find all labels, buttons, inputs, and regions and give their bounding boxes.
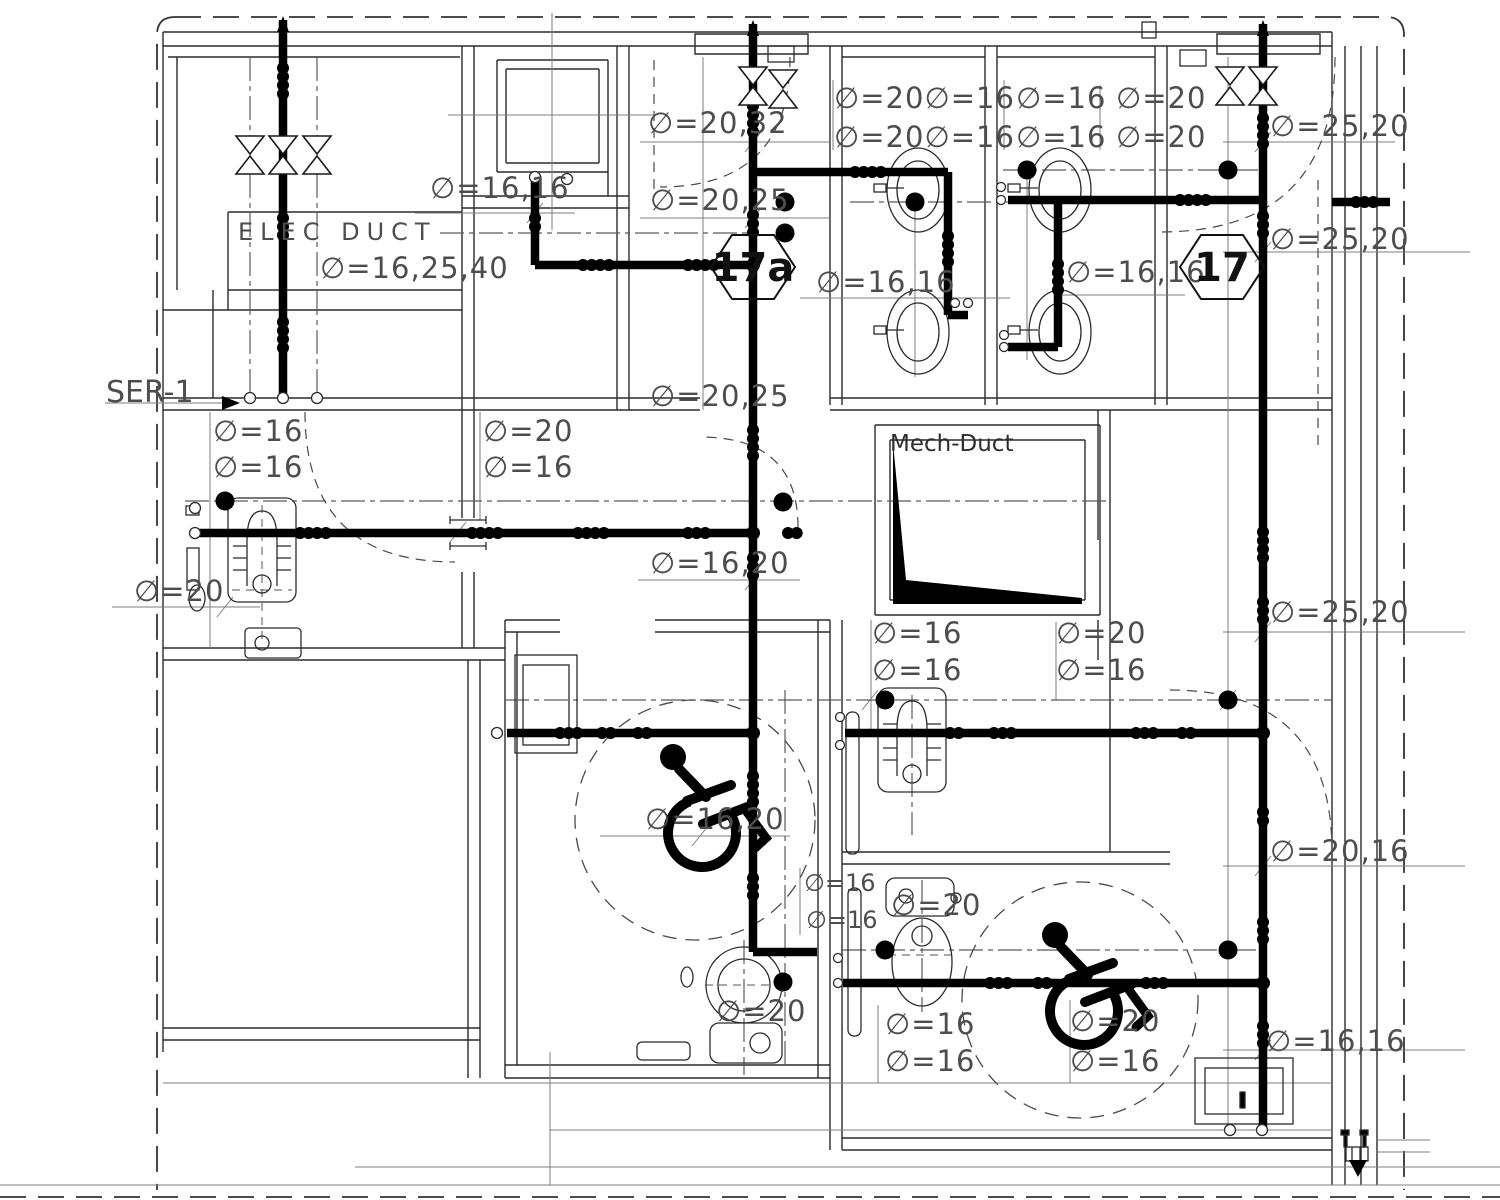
pipe-size-label: ∅=16: [1016, 120, 1106, 154]
pipe-size-label: ∅=16,16: [816, 265, 956, 299]
pipe-size-label: ∅=16: [213, 414, 303, 448]
pipe-size-label: ∅=20: [716, 994, 806, 1028]
pipe-size-label: ∅=16,16: [430, 171, 570, 205]
pipe-size-label: ∅=16: [806, 906, 878, 934]
pipe-size-label: ∅=20,32: [648, 106, 788, 140]
valve-icon: [1216, 67, 1244, 105]
pipe-size-label: ∅=16: [804, 869, 876, 897]
floor-plan-svg: ELEC DUCT∅=16,25,40∅=16,16∅=20,32∅=20,25…: [0, 0, 1500, 1200]
valve-icon: [236, 136, 264, 174]
pipe-size-label: ∅=20: [1116, 81, 1206, 115]
grab-bar-3: [637, 1042, 690, 1060]
valve-icon: [769, 70, 797, 108]
pipe-size-label: ∅=20,16: [1270, 834, 1410, 868]
pipe-size-label: ∅=20∅=16: [834, 81, 1015, 115]
pipe-size-label: ∅=16: [1070, 1044, 1160, 1078]
pipe-size-label: ∅=20: [1056, 616, 1146, 650]
window-fixture-2: [1195, 1058, 1293, 1124]
pipe-size-label: ∅=16: [1056, 653, 1146, 687]
pipe-size-label: ∅=20: [134, 574, 224, 608]
pipe-size-label: ∅=25,20: [1270, 109, 1410, 143]
pipe-size-label: ∅=16: [483, 450, 573, 484]
pipe-size-label: ∅=20∅=16: [834, 120, 1015, 154]
valve-icon: [303, 136, 331, 174]
pipe-size-label: ∅=16: [872, 653, 962, 687]
pipe-size-label: ∅=16,20: [645, 802, 785, 836]
pipe-size-label: ∅=16: [1016, 81, 1106, 115]
pipe-size-label: ∅=16,16: [1266, 1024, 1406, 1058]
room-label: SER-1: [106, 375, 194, 410]
valve-icon: [1249, 67, 1277, 105]
valve-icon: [739, 67, 767, 105]
pipe-size-label: ∅=25,20: [1270, 595, 1410, 629]
valve-icon: [269, 136, 297, 174]
pipe-size-label: ∅=16: [213, 450, 303, 484]
room-label: Mech-Duct: [890, 431, 1013, 457]
washbasin-group-1: [874, 148, 949, 374]
pipe-size-label: ∅=16: [872, 616, 962, 650]
room-label: ELEC DUCT: [238, 218, 437, 246]
pipe-size-label: ∅=16: [885, 1007, 975, 1041]
pipe-size-label: ∅=20: [891, 888, 981, 922]
pipe-size-label: ∅=20,25: [650, 183, 790, 217]
pipe-fitting-beads: [283, 68, 1374, 1048]
pipe-size-label: ∅=16,16: [1066, 255, 1206, 289]
pipe-size-label: ∅=16,25,40: [320, 251, 509, 285]
mech-duct-wedge: [893, 443, 1082, 604]
pipe-size-label: ∅=16: [885, 1044, 975, 1078]
pipe-size-label: ∅=20: [483, 414, 573, 448]
pipe-size-label: ∅=25,20: [1270, 222, 1410, 256]
floor-plan-canvas: ELEC DUCT∅=16,25,40∅=16,16∅=20,32∅=20,25…: [0, 0, 1500, 1200]
wall-tick-1: [1142, 22, 1156, 38]
reference-tag-label: 17a: [712, 245, 795, 291]
pipe-size-label: ∅=16,20: [650, 546, 790, 580]
reference-tag-label: 17: [1194, 245, 1250, 291]
drain-arrow-down: [1349, 1160, 1367, 1177]
pipes: [195, 20, 1390, 1130]
wall-sink: [245, 628, 301, 658]
pipe-size-label: ∅=20: [1116, 120, 1206, 154]
pipe-size-label: ∅=20: [1070, 1004, 1160, 1038]
pipe-size-label: ∅=20,25: [650, 379, 790, 413]
wall-tick-3: [1180, 50, 1206, 66]
